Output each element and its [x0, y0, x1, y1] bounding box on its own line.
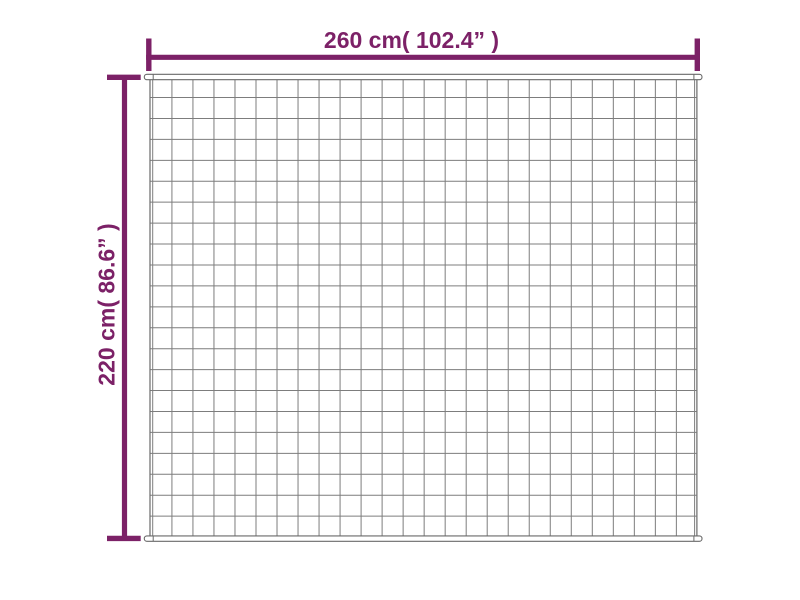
- svg-text:260 cm( 102.4” ): 260 cm( 102.4” ): [324, 27, 499, 53]
- svg-text:220 cm( 86.6” ): 220 cm( 86.6” ): [94, 223, 120, 385]
